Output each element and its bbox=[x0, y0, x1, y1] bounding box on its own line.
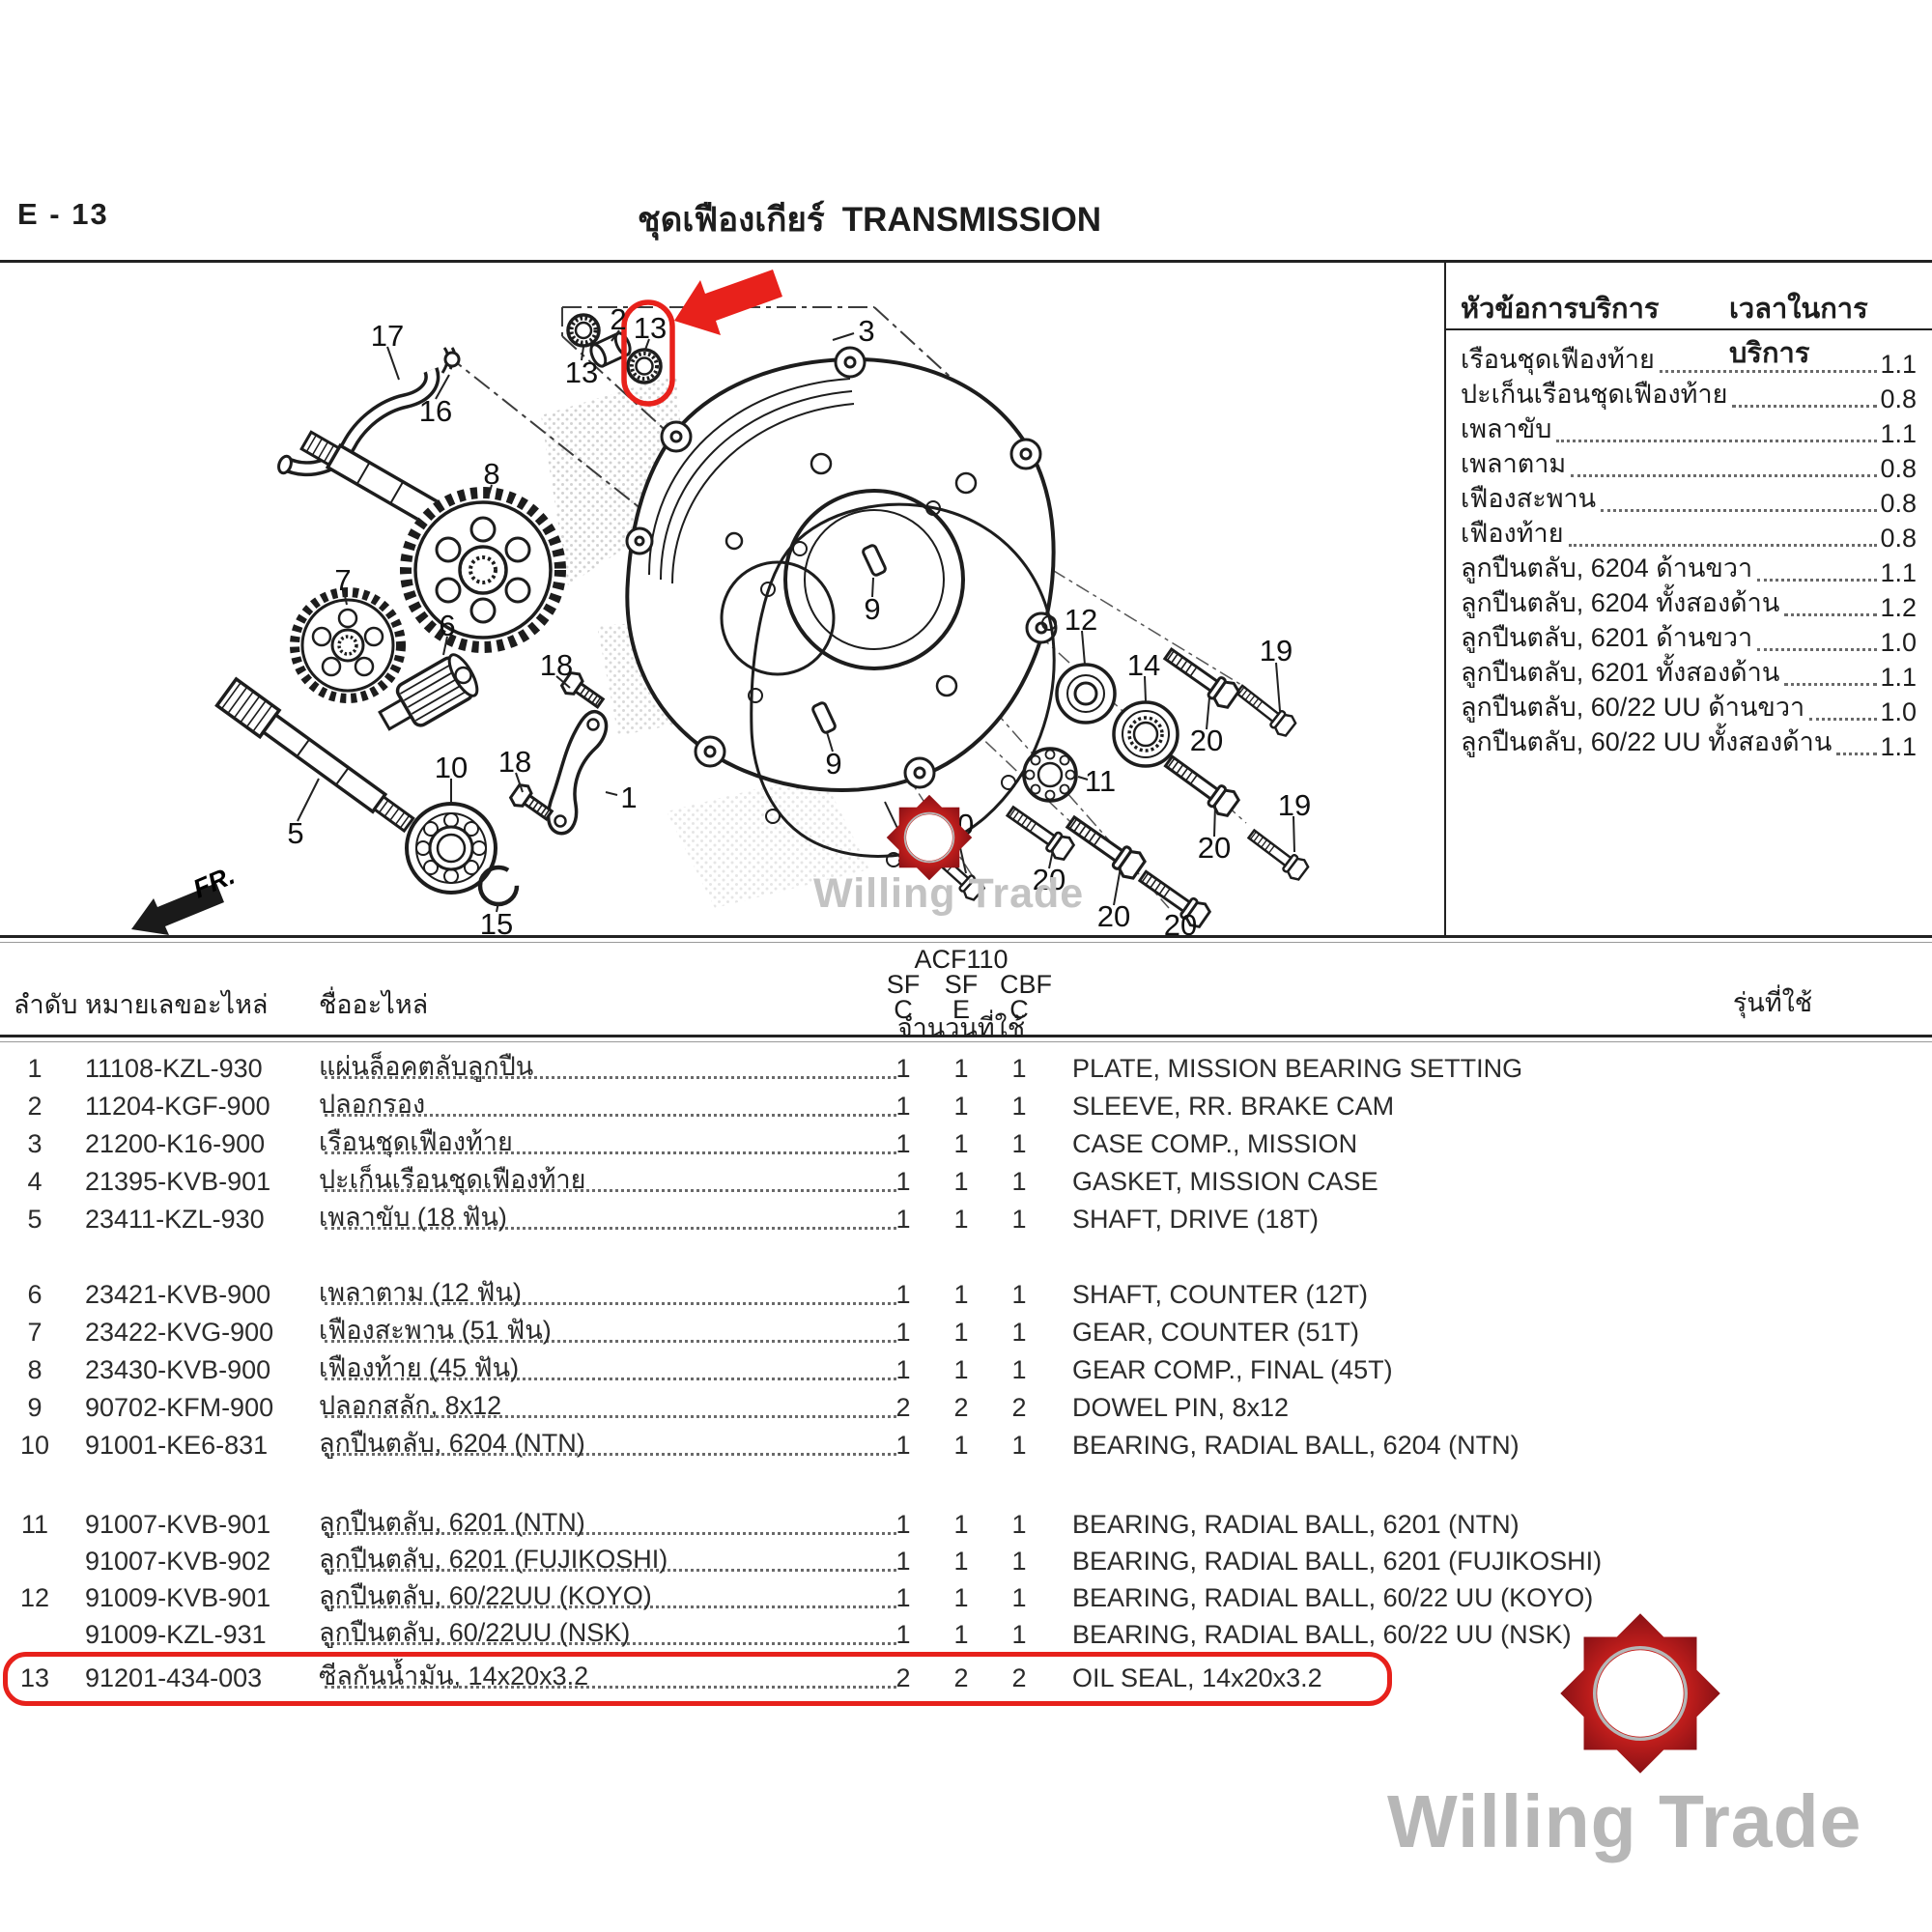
highlight-box-row-13 bbox=[3, 1652, 1392, 1706]
cell-qty-sfc: 1 bbox=[884, 1275, 923, 1314]
snap-ring-part bbox=[480, 867, 517, 904]
service-item-hours: 0.8 bbox=[1880, 489, 1917, 519]
dot-leader bbox=[1601, 509, 1877, 512]
service-item-hours: 0.8 bbox=[1880, 384, 1917, 414]
dot-leader bbox=[1784, 613, 1877, 616]
callout-number: 13 bbox=[565, 355, 598, 389]
cell-qty-sfe: 1 bbox=[942, 1505, 980, 1544]
cell-qty-sfe: 1 bbox=[942, 1087, 980, 1125]
service-item-hours: 1.0 bbox=[1880, 697, 1917, 727]
cell-qty-cbfc: 1 bbox=[1000, 1087, 1038, 1125]
service-item-hours: 1.1 bbox=[1880, 558, 1917, 588]
cell-part-number: 23422-KVG-900 bbox=[85, 1313, 273, 1351]
watermark-text-corner: Willing Trade bbox=[1387, 1779, 1861, 1865]
dot-leader bbox=[1556, 440, 1877, 442]
service-item-hours: 1.1 bbox=[1880, 732, 1917, 762]
cell-qty-cbfc: 1 bbox=[1000, 1505, 1038, 1544]
callout-number: 14 bbox=[1127, 648, 1160, 682]
cell-qty-sfc: 1 bbox=[884, 1200, 923, 1238]
cell-qty-sfc: 1 bbox=[884, 1578, 923, 1617]
col-header-no: ลำดับ bbox=[14, 983, 77, 1025]
highlight-arrow-icon bbox=[674, 270, 782, 335]
service-item-hours: 1.1 bbox=[1880, 419, 1917, 449]
dot-leader bbox=[1732, 405, 1877, 408]
cell-name-en: GASKET, MISSION CASE bbox=[1072, 1162, 1378, 1201]
cell-qty-sfc: 1 bbox=[884, 1615, 923, 1654]
cell-part-number: 91009-KZL-931 bbox=[85, 1615, 267, 1654]
cell-no: 9 bbox=[14, 1388, 56, 1427]
service-item-hours: 1.2 bbox=[1880, 593, 1917, 623]
callout-number: 5 bbox=[287, 816, 303, 850]
cell-qty-sfe: 2 bbox=[942, 1388, 980, 1427]
cell-qty-sfc: 1 bbox=[884, 1542, 923, 1580]
rule-top bbox=[0, 260, 1932, 263]
dot-leader bbox=[1836, 753, 1877, 755]
cell-qty-sfe: 1 bbox=[942, 1542, 980, 1580]
mission-case-part bbox=[627, 348, 1056, 790]
rule-table-top-2 bbox=[0, 942, 1932, 943]
cell-qty-sfe: 1 bbox=[942, 1350, 980, 1389]
cell-name-en: GEAR, COUNTER (51T) bbox=[1072, 1313, 1359, 1351]
cell-part-number: 21200-K16-900 bbox=[85, 1124, 265, 1163]
drive-shaft-part bbox=[217, 679, 418, 838]
page-title-en: TRANSMISSION bbox=[842, 201, 1101, 239]
callout-number: 19 bbox=[1260, 634, 1293, 668]
table-row: 523411-KZL-930เพลาขับ (18 ฟัน)111SHAFT, … bbox=[0, 1200, 1922, 1238]
cell-name-en: SHAFT, DRIVE (18T) bbox=[1072, 1200, 1319, 1238]
table-row: 823430-KVB-900เฟืองท้าย (45 ฟัน)111GEAR … bbox=[0, 1350, 1922, 1389]
page-title-thai: ชุดเฟืองเกียร์ bbox=[638, 201, 825, 239]
service-topic-header: หัวข้อการบริการ bbox=[1461, 286, 1659, 330]
cell-part-number: 90702-KFM-900 bbox=[85, 1388, 273, 1427]
callout-number: 19 bbox=[1278, 788, 1311, 822]
cell-qty-cbfc: 1 bbox=[1000, 1162, 1038, 1201]
oil-seal-13-right-part bbox=[628, 350, 661, 383]
cell-part-number: 91007-KVB-902 bbox=[85, 1542, 270, 1580]
callout-number: 8 bbox=[483, 457, 499, 491]
cell-part-name: ปะเก็นเรือนชุดเฟืองท้าย bbox=[319, 1162, 898, 1201]
cell-part-number: 21395-KVB-901 bbox=[85, 1162, 270, 1201]
callout-number: 17 bbox=[371, 319, 404, 353]
service-item-hours: 1.1 bbox=[1880, 663, 1917, 693]
cell-part-number: 23421-KVB-900 bbox=[85, 1275, 270, 1314]
cell-qty-sfe: 1 bbox=[942, 1049, 980, 1088]
table-row: 1291009-KVB-901ลูกปืนตลับ, 60/22UU (KOYO… bbox=[0, 1578, 1922, 1617]
cell-no: 3 bbox=[14, 1124, 56, 1163]
cell-qty-sfc: 1 bbox=[884, 1505, 923, 1544]
col-header-part-name: ชื่ออะไหล่ bbox=[319, 983, 428, 1025]
cell-no: 4 bbox=[14, 1162, 56, 1201]
cell-no: 1 bbox=[14, 1049, 56, 1088]
cell-qty-sfc: 1 bbox=[884, 1124, 923, 1163]
cell-no: 5 bbox=[14, 1200, 56, 1238]
bolt-20-part bbox=[1161, 751, 1241, 819]
cell-qty-sfe: 1 bbox=[942, 1426, 980, 1464]
cell-qty-sfe: 1 bbox=[942, 1615, 980, 1654]
table-row: 111108-KZL-930แผ่นล็อคตลับลูกปืน111PLATE… bbox=[0, 1049, 1922, 1088]
service-item-label: ลูกปืนตลับ, 60/22 UU ทั้งสองด้าน bbox=[1461, 721, 1832, 762]
table-row: 1191007-KVB-901ลูกปืนตลับ, 6201 (NTN)111… bbox=[0, 1505, 1922, 1544]
callout-number: 11 bbox=[1085, 764, 1116, 798]
callout-number: 6 bbox=[439, 609, 455, 642]
cell-qty-sfc: 1 bbox=[884, 1162, 923, 1201]
cell-part-number: 23430-KVB-900 bbox=[85, 1350, 270, 1389]
cell-qty-sfc: 2 bbox=[884, 1388, 923, 1427]
cell-qty-cbfc: 1 bbox=[1000, 1578, 1038, 1617]
callout-number: 2 bbox=[610, 302, 626, 336]
cell-name-en: CASE COMP., MISSION bbox=[1072, 1124, 1357, 1163]
table-row: 91007-KVB-902ลูกปืนตลับ, 6201 (FUJIKOSHI… bbox=[0, 1542, 1922, 1580]
cell-part-name: ลูกปืนตลับ, 60/22UU (NSK) bbox=[319, 1615, 898, 1654]
cell-part-number: 11108-KZL-930 bbox=[85, 1049, 263, 1088]
cell-qty-sfc: 1 bbox=[884, 1049, 923, 1088]
cell-qty-sfc: 1 bbox=[884, 1087, 923, 1125]
callout-number: 20 bbox=[1190, 724, 1223, 757]
cell-no: 7 bbox=[14, 1313, 56, 1351]
cell-qty-cbfc: 1 bbox=[1000, 1350, 1038, 1389]
service-item-hours: 0.8 bbox=[1880, 524, 1917, 554]
cell-name-en: DOWEL PIN, 8x12 bbox=[1072, 1388, 1289, 1427]
cell-name-en: BEARING, RADIAL BALL, 6204 (NTN) bbox=[1072, 1426, 1520, 1464]
table-row: 91009-KZL-931ลูกปืนตลับ, 60/22UU (NSK)11… bbox=[0, 1615, 1922, 1654]
cell-name-en: BEARING, RADIAL BALL, 60/22 UU (NSK) bbox=[1072, 1615, 1572, 1654]
cell-qty-sfe: 1 bbox=[942, 1162, 980, 1201]
cell-qty-cbfc: 1 bbox=[1000, 1615, 1038, 1654]
callout-number: 9 bbox=[825, 747, 841, 781]
cell-part-number: 11204-KGF-900 bbox=[85, 1087, 270, 1125]
cell-qty-cbfc: 1 bbox=[1000, 1426, 1038, 1464]
cell-name-en: BEARING, RADIAL BALL, 6201 (FUJIKOSHI) bbox=[1072, 1542, 1602, 1580]
callout-number: 1 bbox=[620, 781, 637, 814]
cell-part-name: ปลอกรอง bbox=[319, 1087, 898, 1125]
callout-number: 9 bbox=[864, 592, 880, 626]
cell-qty-cbfc: 1 bbox=[1000, 1049, 1038, 1088]
service-item-hours: 1.1 bbox=[1880, 350, 1917, 380]
service-item-hours: 0.8 bbox=[1880, 454, 1917, 484]
oil-seal-13-left-part bbox=[568, 315, 599, 346]
table-row: 1091001-KE6-831ลูกปืนตลับ, 6204 (NTN)111… bbox=[0, 1426, 1922, 1464]
cell-qty-sfe: 1 bbox=[942, 1275, 980, 1314]
watermark-text-center: Willing Trade bbox=[813, 870, 1084, 918]
col-header-qty: จำนวนที่ใช้ bbox=[865, 1007, 1058, 1048]
cell-name-en: GEAR COMP., FINAL (45T) bbox=[1072, 1350, 1393, 1389]
cell-no: 10 bbox=[14, 1426, 56, 1464]
cell-part-name: ลูกปืนตลับ, 60/22UU (KOYO) bbox=[319, 1578, 898, 1617]
table-row: 723422-KVG-900เฟืองสะพาน (51 ฟัน)111GEAR… bbox=[0, 1313, 1922, 1351]
callout-number: 20 bbox=[1097, 899, 1130, 933]
cell-qty-sfc: 1 bbox=[884, 1350, 923, 1389]
cell-qty-cbfc: 1 bbox=[1000, 1542, 1038, 1580]
callout-number: 13 bbox=[634, 311, 667, 345]
cell-part-name: ลูกปืนตลับ, 6201 (FUJIKOSHI) bbox=[319, 1542, 898, 1580]
cell-name-en: BEARING, RADIAL BALL, 60/22 UU (KOYO) bbox=[1072, 1578, 1593, 1617]
cell-part-name: เฟืองสะพาน (51 ฟัน) bbox=[319, 1313, 898, 1351]
cell-qty-sfc: 1 bbox=[884, 1426, 923, 1464]
rule-table-top bbox=[0, 935, 1932, 938]
cell-part-name: เฟืองท้าย (45 ฟัน) bbox=[319, 1350, 898, 1389]
cell-part-name: ลูกปืนตลับ, 6201 (NTN) bbox=[319, 1505, 898, 1544]
cell-name-en: BEARING, RADIAL BALL, 6201 (NTN) bbox=[1072, 1505, 1520, 1544]
cell-part-name: แผ่นล็อคตลับลูกปืน bbox=[319, 1049, 898, 1088]
cell-qty-cbfc: 1 bbox=[1000, 1275, 1038, 1314]
cell-qty-cbfc: 1 bbox=[1000, 1124, 1038, 1163]
cell-part-number: 23411-KZL-930 bbox=[85, 1200, 265, 1238]
callout-number: 12 bbox=[1065, 603, 1097, 637]
bolt-20-part bbox=[1004, 802, 1076, 863]
cell-name-en: SLEEVE, RR. BRAKE CAM bbox=[1072, 1087, 1394, 1125]
bolt-19-part bbox=[1233, 681, 1297, 738]
counter-gear-part bbox=[290, 587, 406, 703]
cell-qty-cbfc: 1 bbox=[1000, 1200, 1038, 1238]
col-header-model: รุ่นที่ใช้ bbox=[1681, 981, 1864, 1023]
cell-qty-cbfc: 2 bbox=[1000, 1388, 1038, 1427]
cell-no: 12 bbox=[14, 1578, 56, 1617]
cell-part-name: เพลาขับ (18 ฟัน) bbox=[319, 1200, 898, 1238]
service-item: ลูกปืนตลับ, 60/22 UU ทั้งสองด้าน1.1 bbox=[1461, 727, 1917, 762]
callout-number: 16 bbox=[419, 394, 452, 428]
cell-no: 8 bbox=[14, 1350, 56, 1389]
cell-qty-sfe: 1 bbox=[942, 1124, 980, 1163]
table-row: 321200-K16-900เรือนชุดเฟืองท้าย111CASE C… bbox=[0, 1124, 1922, 1163]
callout-number: 3 bbox=[858, 314, 874, 348]
cell-name-en: PLATE, MISSION BEARING SETTING bbox=[1072, 1049, 1522, 1088]
table-row: 211204-KGF-900ปลอกรอง111SLEEVE, RR. BRAK… bbox=[0, 1087, 1922, 1125]
cell-qty-cbfc: 1 bbox=[1000, 1313, 1038, 1351]
cell-part-name: เรือนชุดเฟืองท้าย bbox=[319, 1124, 898, 1163]
watermark-logo-center bbox=[887, 795, 972, 880]
callout-number: 10 bbox=[435, 751, 468, 784]
cell-no: 6 bbox=[14, 1275, 56, 1314]
dot-leader bbox=[1571, 474, 1877, 477]
rule-panel-divider bbox=[1444, 260, 1446, 938]
callout-number: 7 bbox=[334, 563, 351, 597]
table-row: 421395-KVB-901ปะเก็นเรือนชุดเฟืองท้าย111… bbox=[0, 1162, 1922, 1201]
cell-no: 2 bbox=[14, 1087, 56, 1125]
cell-qty-sfe: 1 bbox=[942, 1313, 980, 1351]
cell-part-number: 91009-KVB-901 bbox=[85, 1578, 270, 1617]
bearing-6201-part bbox=[1024, 749, 1076, 801]
page-title: ชุดเฟืองเกียร์TRANSMISSION bbox=[599, 193, 1140, 246]
setting-plate-part bbox=[549, 712, 607, 834]
cell-no: 11 bbox=[14, 1505, 56, 1544]
cell-part-name: เพลาตาม (12 ฟัน) bbox=[319, 1275, 898, 1314]
cell-qty-sfe: 1 bbox=[942, 1578, 980, 1617]
service-item-hours: 1.0 bbox=[1880, 628, 1917, 658]
cell-qty-sfe: 1 bbox=[942, 1200, 980, 1238]
cell-part-number: 91001-KE6-831 bbox=[85, 1426, 268, 1464]
callout-number: 18 bbox=[540, 648, 573, 682]
page-code: E - 13 bbox=[17, 197, 109, 232]
bolt-19-part bbox=[1245, 825, 1311, 882]
cell-qty-sfc: 1 bbox=[884, 1313, 923, 1351]
callout-number: 20 bbox=[1198, 831, 1231, 865]
cell-name-en: SHAFT, COUNTER (12T) bbox=[1072, 1275, 1368, 1314]
table-row: 990702-KFM-900ปลอกสลัก, 8x12222DOWEL PIN… bbox=[0, 1388, 1922, 1427]
seal-14-part bbox=[1114, 702, 1178, 766]
cell-part-name: ลูกปืนตลับ, 6204 (NTN) bbox=[319, 1426, 898, 1464]
cell-part-number: 91007-KVB-901 bbox=[85, 1505, 270, 1544]
bearing-60-22uu-part bbox=[1057, 665, 1115, 723]
cell-part-name: ปลอกสลัก, 8x12 bbox=[319, 1388, 898, 1427]
callout-number: 18 bbox=[498, 745, 531, 779]
table-row: 623421-KVB-900เพลาตาม (12 ฟัน)111SHAFT, … bbox=[0, 1275, 1922, 1314]
col-header-part-number: หมายเลขอะไหล่ bbox=[85, 983, 268, 1025]
